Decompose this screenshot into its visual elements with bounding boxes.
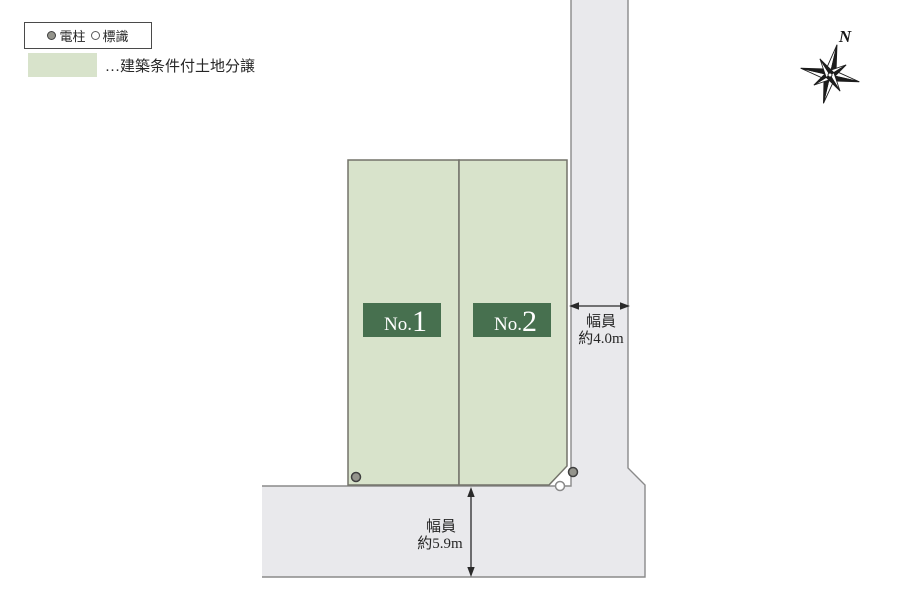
plot-no2: No. 2 <box>459 160 567 485</box>
east-road-width-label-1: 幅員 <box>586 313 616 330</box>
sign-marker-southeast <box>556 482 565 491</box>
compass-north-label: N <box>838 27 852 46</box>
south-road-width-label-2: 約5.9m <box>417 535 463 552</box>
south-road-width-label-1: 幅員 <box>426 518 456 535</box>
compass-rose <box>794 38 866 110</box>
utility-pole-marker-southwest <box>352 473 361 482</box>
plot-no2-label-prefix: No. <box>494 314 522 335</box>
site-plan-drawing: No. 1 No. 2 幅員 約4.0m 幅員 <box>0 0 900 600</box>
plot-no1-label-number: 1 <box>412 305 427 338</box>
plot-no1: No. 1 <box>348 160 459 485</box>
utility-pole-marker-southeast <box>569 468 578 477</box>
plot-no1-label-prefix: No. <box>384 314 412 335</box>
land-plot-site-plan: 電柱 標識 …建築条件付土地分譲 No. 1 No. 2 <box>0 0 900 600</box>
plot-no2-label-number: 2 <box>522 305 537 338</box>
east-road-width-label-2: 約4.0m <box>578 330 624 347</box>
